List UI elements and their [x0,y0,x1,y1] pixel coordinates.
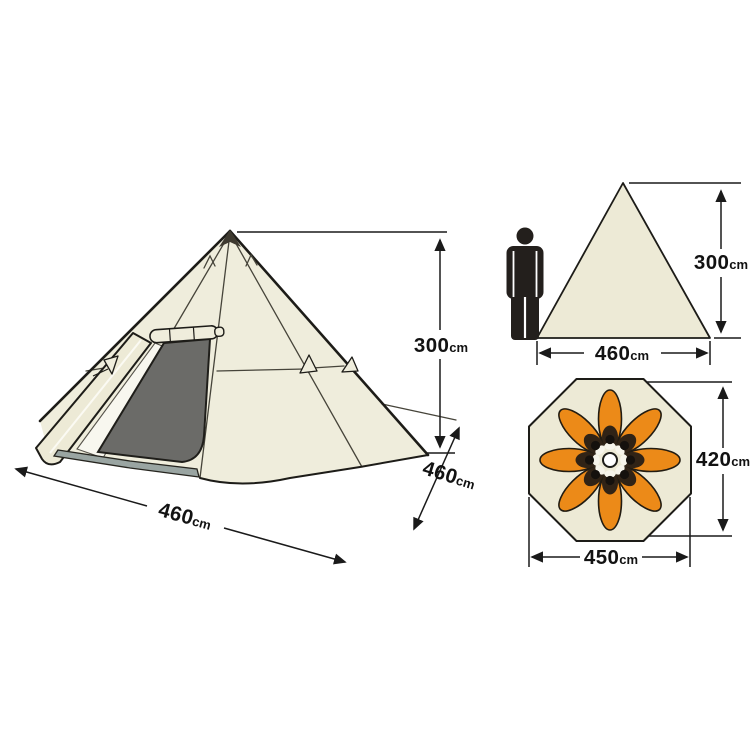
main-width-label: 460cm [156,498,214,535]
main-height-label: 300cm [414,334,468,357]
arrow-left [16,469,147,506]
main-tent-illustration: 300cm 460cm 460cm [16,230,478,562]
side-width-dimension: 460cm [537,341,710,365]
center-pole [603,453,617,467]
door-roll-endcap [214,327,224,337]
side-view-triangle [537,183,710,338]
side-height-label: 300cm [694,251,748,274]
person-head [517,228,534,245]
floor-plan-panel: 420cm 450cm [529,379,750,569]
floor-height-label: 420cm [696,448,750,471]
main-depth-label: 460cm [420,457,479,495]
diagram-svg: 300cm 460cm 460cm 300cm [0,0,750,750]
side-view-panel: 300cm 460cm [507,183,749,365]
side-width-label: 460cm [595,342,649,365]
tent-dimension-diagram: 300cm 460cm 460cm 300cm [0,0,750,750]
arrow-right [224,528,345,562]
main-depth-dimension: 460cm [414,428,478,529]
person-figure [507,228,544,341]
main-width-dimension: 460cm [16,469,345,562]
floor-width-label: 450cm [584,546,638,569]
